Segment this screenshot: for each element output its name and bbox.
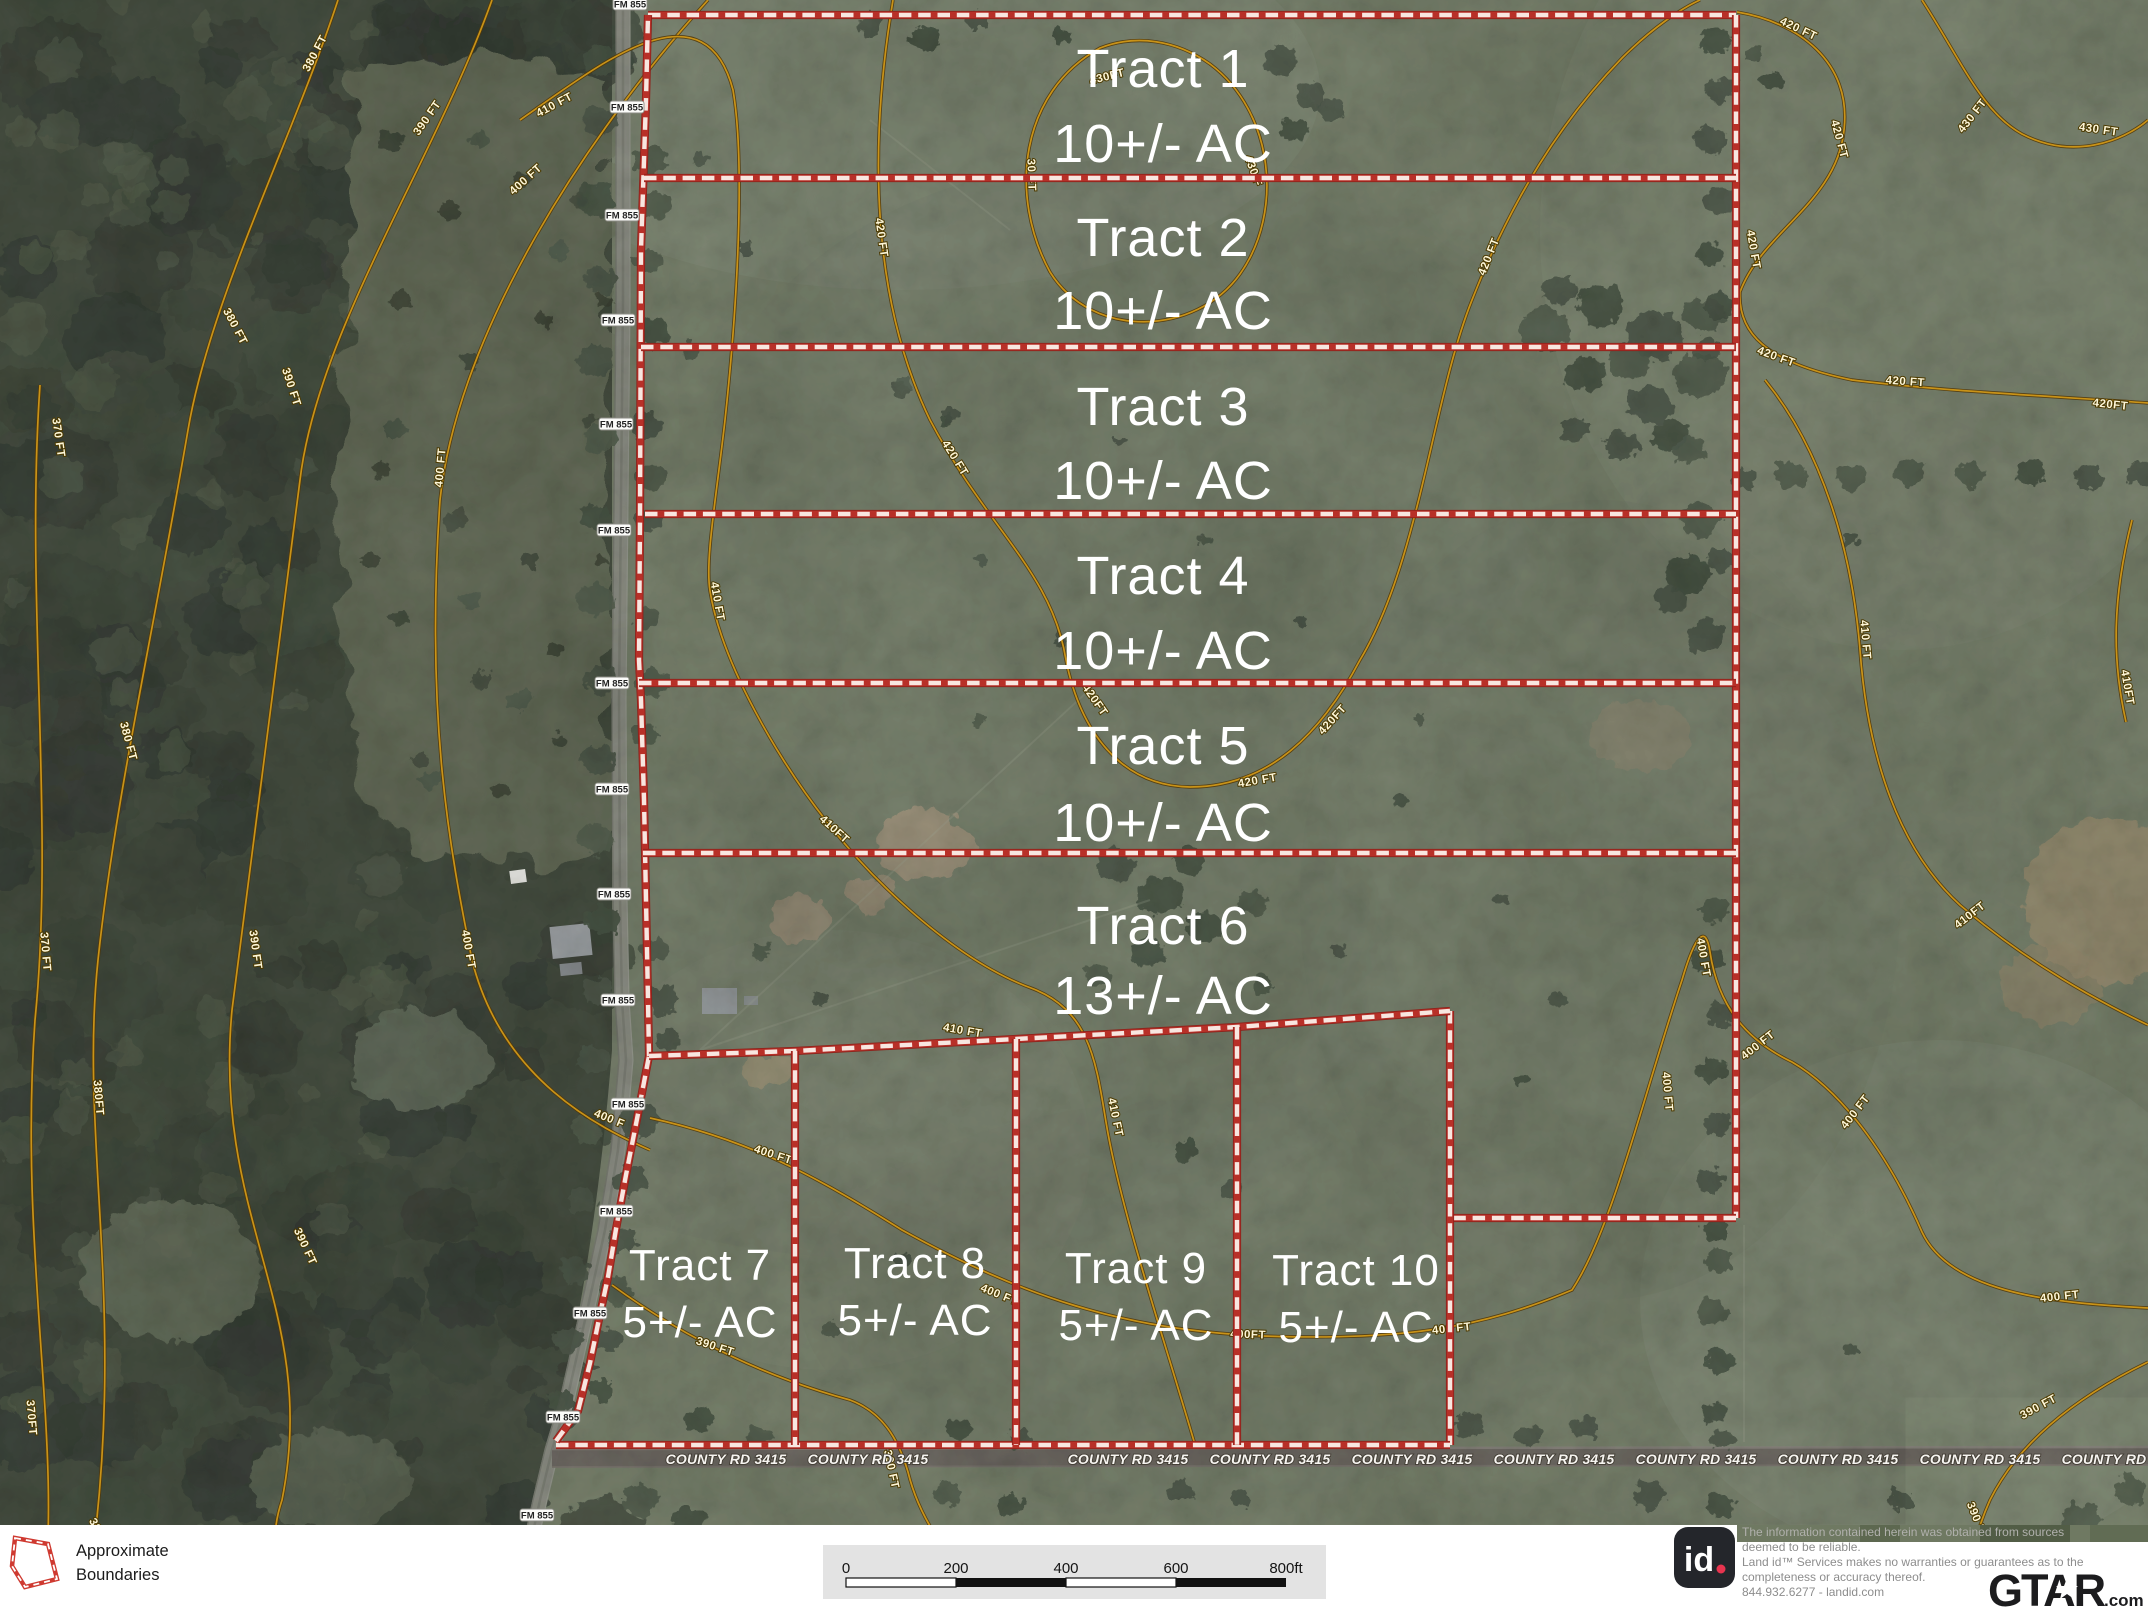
svg-text:10+/- AC: 10+/- AC	[1053, 793, 1273, 853]
svg-text:200: 200	[943, 1560, 968, 1577]
svg-text:FM 855: FM 855	[574, 1309, 607, 1320]
svg-text:COUNTY RD 3415: COUNTY RD 3415	[808, 1451, 929, 1467]
svg-text:FM 855: FM 855	[598, 890, 631, 901]
svg-text:Tract 8: Tract 8	[844, 1239, 986, 1288]
svg-text:FM 855: FM 855	[606, 211, 639, 222]
svg-text:FM 855: FM 855	[611, 103, 644, 114]
svg-text:FM 855: FM 855	[521, 1511, 554, 1522]
svg-text:COUNTY RD 3415: COUNTY RD 3415	[1352, 1451, 1473, 1467]
svg-text:5+/- AC: 5+/- AC	[1059, 1301, 1214, 1350]
svg-text:FM 855: FM 855	[600, 420, 633, 431]
svg-text:Tract 2: Tract 2	[1076, 208, 1249, 268]
svg-text:844.932.6277 - landid.com: 844.932.6277 - landid.com	[1742, 1585, 1884, 1599]
svg-text:10+/- AC: 10+/- AC	[1053, 281, 1273, 341]
svg-text:FM 855: FM 855	[600, 1207, 633, 1218]
svg-text:.com: .com	[2104, 1591, 2144, 1609]
svg-text:10+/- AC: 10+/- AC	[1053, 451, 1273, 511]
svg-text:Tract 9: Tract 9	[1065, 1244, 1207, 1293]
svg-text:COUNTY RD 3415: COUNTY RD 3415	[666, 1451, 787, 1467]
svg-text:id: id	[1684, 1541, 1714, 1579]
svg-text:FM 855: FM 855	[614, 0, 647, 11]
svg-text:Tract 1: Tract 1	[1076, 39, 1249, 99]
svg-text:FM 855: FM 855	[596, 785, 629, 796]
svg-text:deemed to be reliable.: deemed to be reliable.	[1742, 1540, 1861, 1554]
svg-text:Boundaries: Boundaries	[76, 1566, 159, 1584]
svg-text:COUNTY RD 3415: COUNTY RD 3415	[1494, 1451, 1615, 1467]
svg-text:COUNTY RD 3415: COUNTY RD 3415	[1778, 1451, 1899, 1467]
svg-text:400: 400	[1053, 1560, 1078, 1577]
svg-text:FM 855: FM 855	[602, 316, 635, 327]
svg-text:5+/- AC: 5+/- AC	[838, 1296, 993, 1345]
svg-text:0: 0	[842, 1560, 850, 1577]
svg-text:Tract 7: Tract 7	[629, 1241, 771, 1290]
svg-text:COUNTY RD 3415: COUNTY RD 3415	[1068, 1451, 1189, 1467]
svg-text:FM 855: FM 855	[612, 1100, 645, 1111]
svg-text:10+/- AC: 10+/- AC	[1053, 114, 1273, 174]
svg-text:The information contained here: The information contained herein was obt…	[1742, 1525, 2064, 1539]
svg-text:FM 855: FM 855	[602, 996, 635, 1007]
svg-text:5+/- AC: 5+/- AC	[1279, 1303, 1434, 1352]
svg-text:13+/- AC: 13+/- AC	[1053, 966, 1273, 1026]
svg-text:Tract 4: Tract 4	[1076, 546, 1249, 606]
svg-text:FM 855: FM 855	[596, 679, 629, 690]
svg-text:FM 855: FM 855	[547, 1413, 580, 1424]
svg-text:800ft: 800ft	[1269, 1560, 1303, 1577]
svg-text:Tract 6: Tract 6	[1076, 896, 1249, 956]
svg-text:completeness or accuracy there: completeness or accuracy thereof.	[1742, 1570, 1925, 1584]
svg-text:Tract 10: Tract 10	[1272, 1246, 1440, 1295]
svg-text:5+/- AC: 5+/- AC	[623, 1298, 778, 1347]
svg-text:Approximate: Approximate	[76, 1542, 169, 1560]
svg-text:600: 600	[1163, 1560, 1188, 1577]
svg-text:10+/- AC: 10+/- AC	[1053, 621, 1273, 681]
svg-text:COUNTY RD 3415: COUNTY RD 3415	[1210, 1451, 1331, 1467]
svg-text:Tract 5: Tract 5	[1076, 716, 1249, 776]
svg-text:COUNTY RD 3415: COUNTY RD 3415	[2062, 1451, 2148, 1467]
svg-text:COUNTY RD 3415: COUNTY RD 3415	[1920, 1451, 2041, 1467]
svg-text:Tract 3: Tract 3	[1076, 377, 1249, 437]
svg-text:COUNTY RD 3415: COUNTY RD 3415	[1636, 1451, 1757, 1467]
svg-text:GTAR: GTAR	[1988, 1565, 2106, 1609]
svg-text:FM 855: FM 855	[598, 526, 631, 537]
